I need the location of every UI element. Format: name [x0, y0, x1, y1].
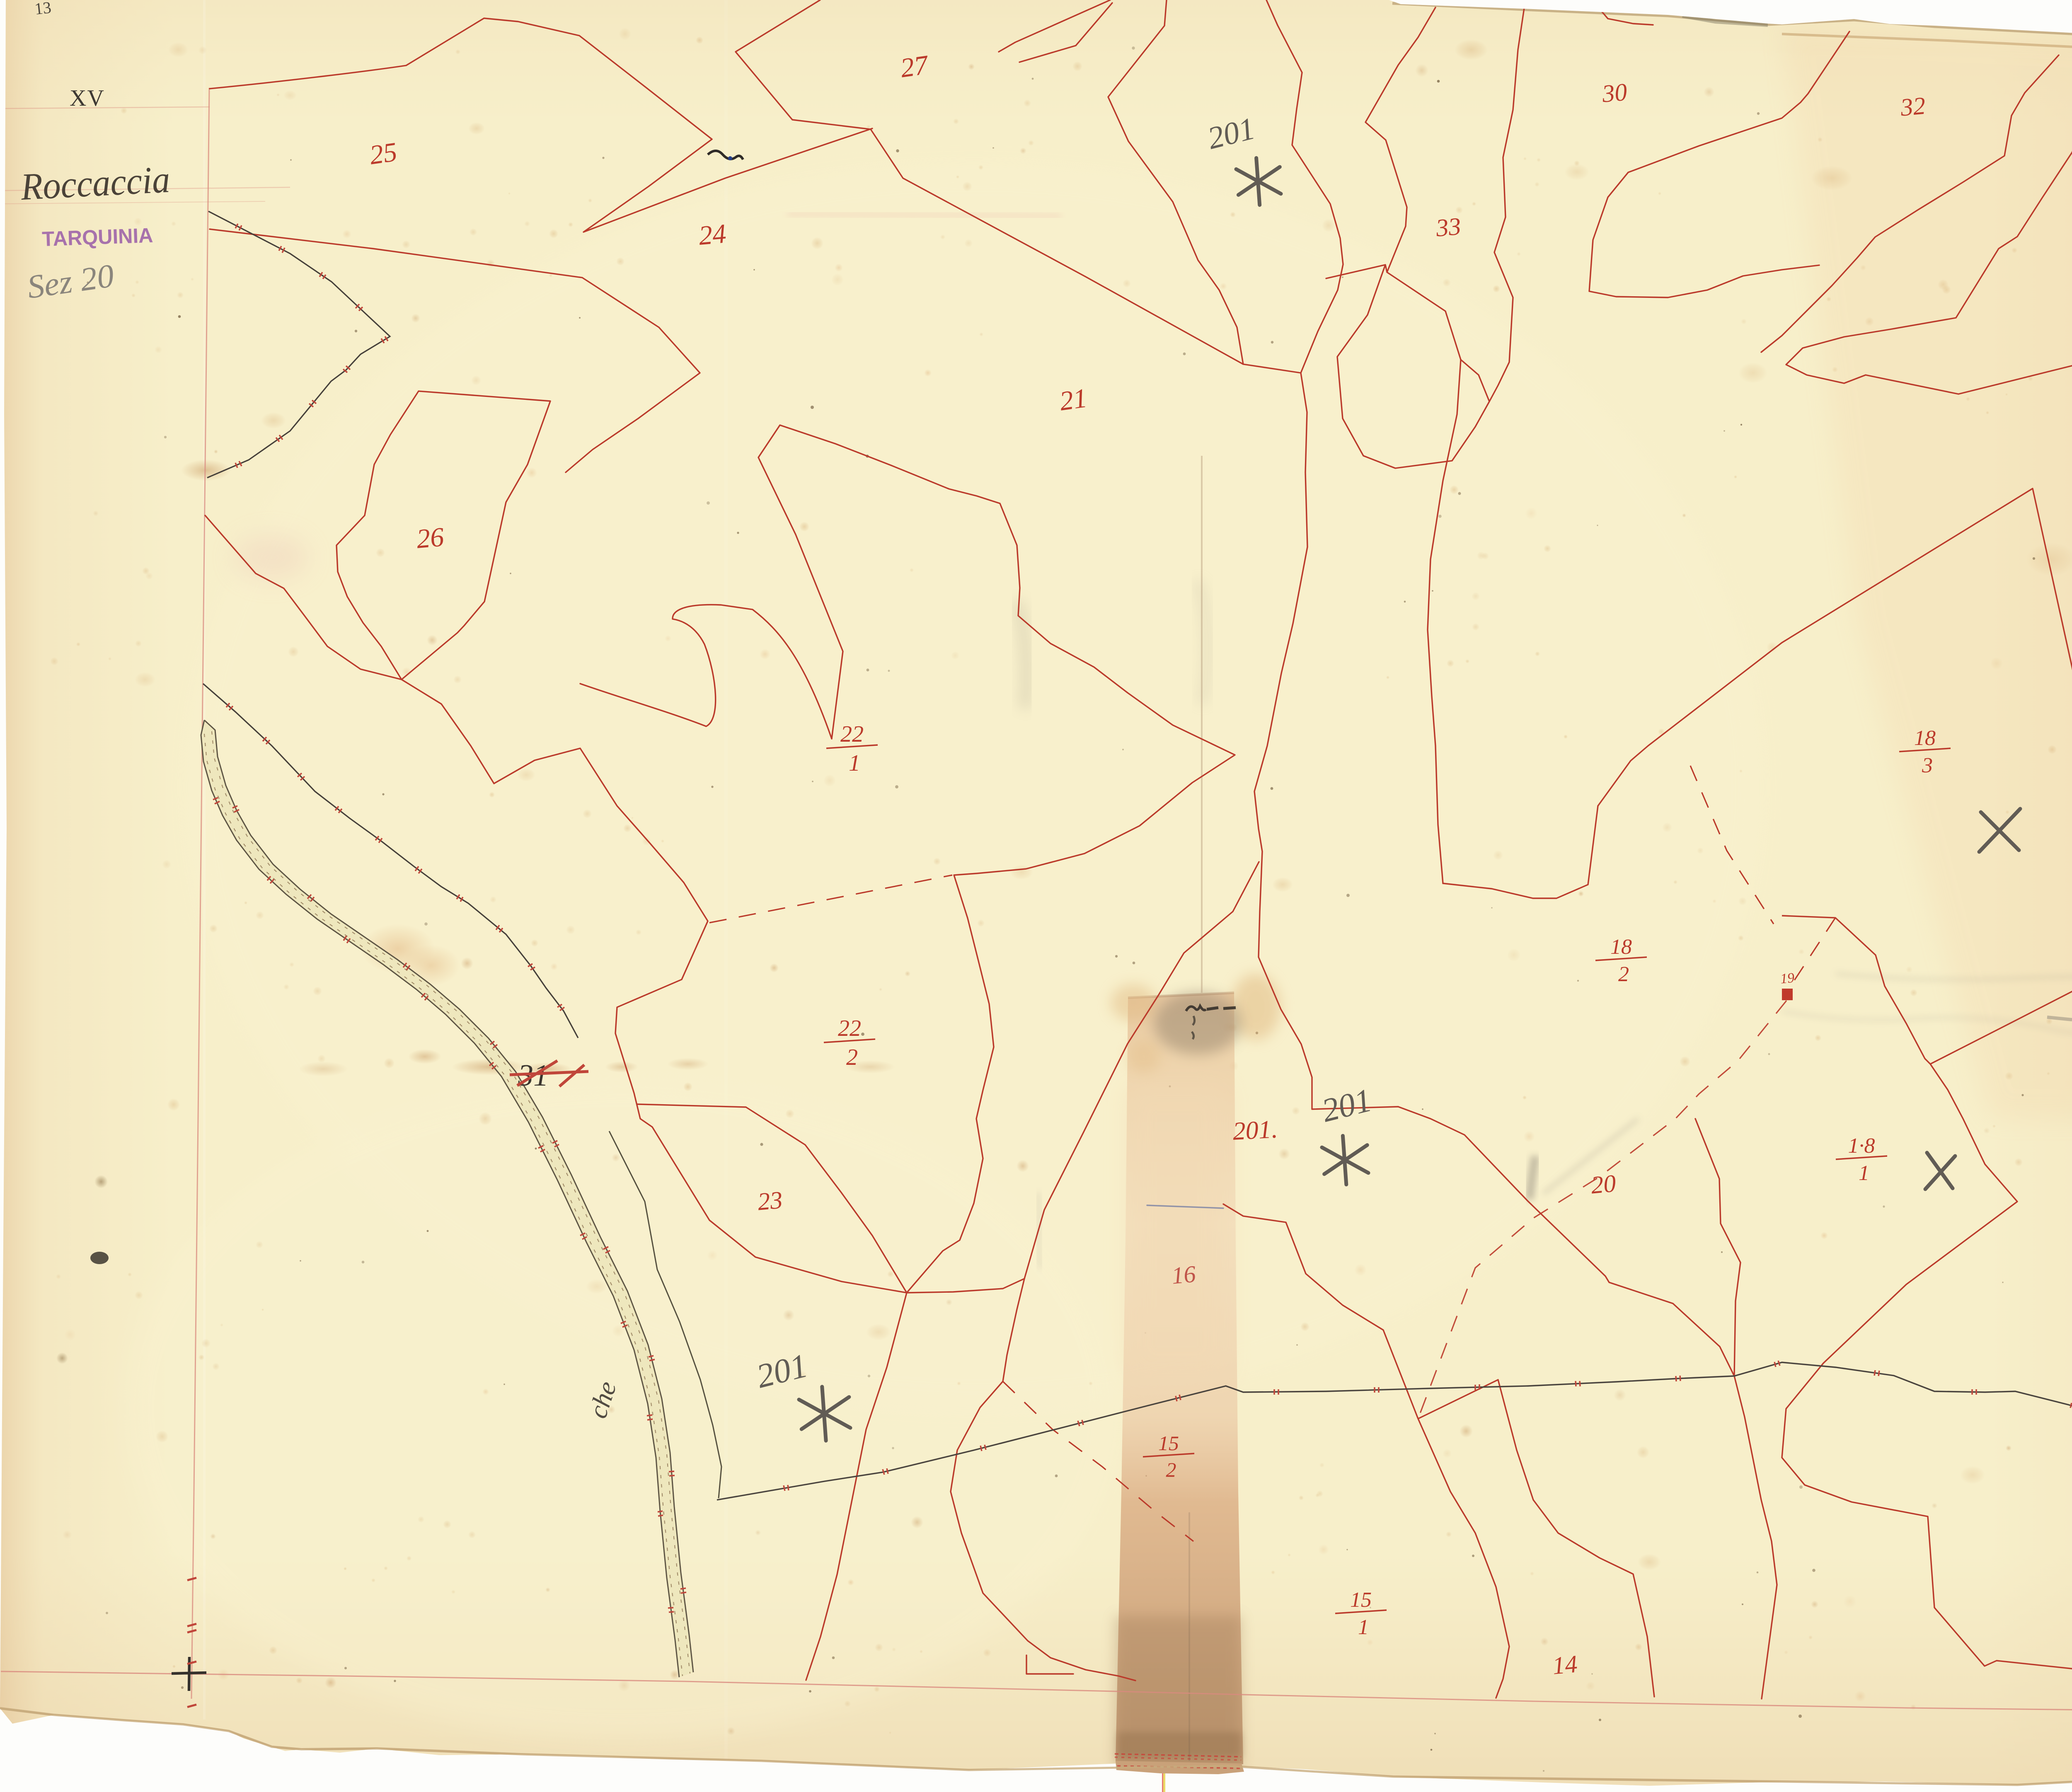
svg-text:30: 30: [1600, 78, 1628, 108]
svg-text:26: 26: [415, 522, 445, 554]
svg-text:TARQUINIA: TARQUINIA: [41, 224, 153, 251]
svg-text:13: 13: [34, 0, 52, 18]
svg-text:1: 1: [1358, 1615, 1369, 1639]
svg-text:2: 2: [1618, 963, 1629, 986]
svg-text:25: 25: [368, 137, 399, 170]
svg-text:22: 22: [840, 721, 864, 747]
svg-text:23: 23: [756, 1186, 784, 1216]
svg-text:1: 1: [1859, 1161, 1869, 1185]
svg-text:XV: XV: [70, 85, 105, 111]
svg-text:1·8: 1·8: [1848, 1134, 1875, 1158]
svg-text:33: 33: [1434, 213, 1462, 242]
svg-text:16: 16: [1171, 1260, 1197, 1289]
svg-text:18: 18: [1914, 726, 1936, 750]
svg-text:27: 27: [898, 50, 931, 84]
svg-text:22: 22: [838, 1016, 861, 1041]
svg-text:18: 18: [1610, 935, 1632, 959]
svg-text:2: 2: [846, 1045, 858, 1070]
svg-text:2: 2: [1166, 1458, 1176, 1481]
svg-text:3: 3: [1922, 754, 1933, 777]
svg-text:1: 1: [849, 750, 860, 776]
svg-text:19: 19: [1780, 970, 1795, 987]
svg-text:20: 20: [1590, 1170, 1617, 1199]
svg-text:24: 24: [697, 218, 727, 251]
svg-text:15: 15: [1350, 1588, 1372, 1612]
svg-text:15: 15: [1158, 1432, 1179, 1455]
svg-text:201.: 201.: [1232, 1115, 1278, 1146]
svg-text:32: 32: [1899, 92, 1927, 121]
svg-text:Roccaccia: Roccaccia: [19, 158, 171, 208]
svg-text:14: 14: [1551, 1650, 1578, 1680]
svg-text:21: 21: [1058, 383, 1089, 416]
